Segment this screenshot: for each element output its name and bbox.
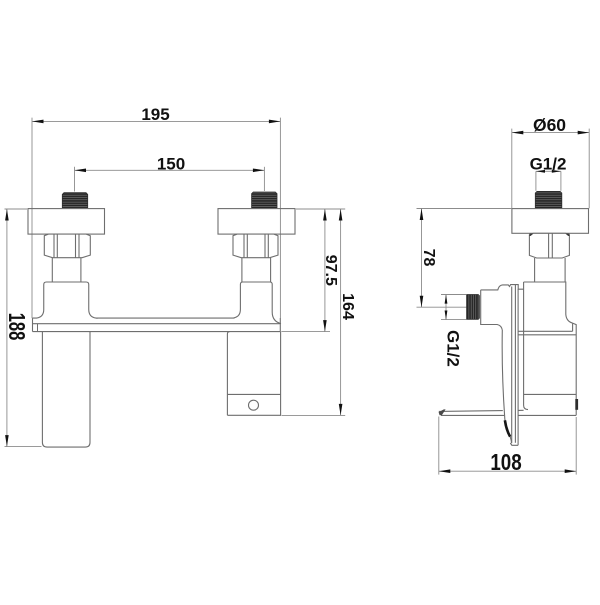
svg-text:G1/2: G1/2 bbox=[444, 330, 463, 367]
svg-text:108: 108 bbox=[490, 449, 521, 476]
svg-text:Ø60: Ø60 bbox=[533, 115, 566, 135]
svg-text:G1/2: G1/2 bbox=[530, 154, 567, 173]
svg-text:164: 164 bbox=[339, 293, 356, 320]
svg-text:97.5: 97.5 bbox=[322, 255, 339, 286]
svg-text:188: 188 bbox=[3, 313, 28, 341]
svg-text:150: 150 bbox=[157, 154, 185, 173]
svg-text:195: 195 bbox=[141, 105, 169, 124]
svg-text:78: 78 bbox=[420, 249, 437, 267]
